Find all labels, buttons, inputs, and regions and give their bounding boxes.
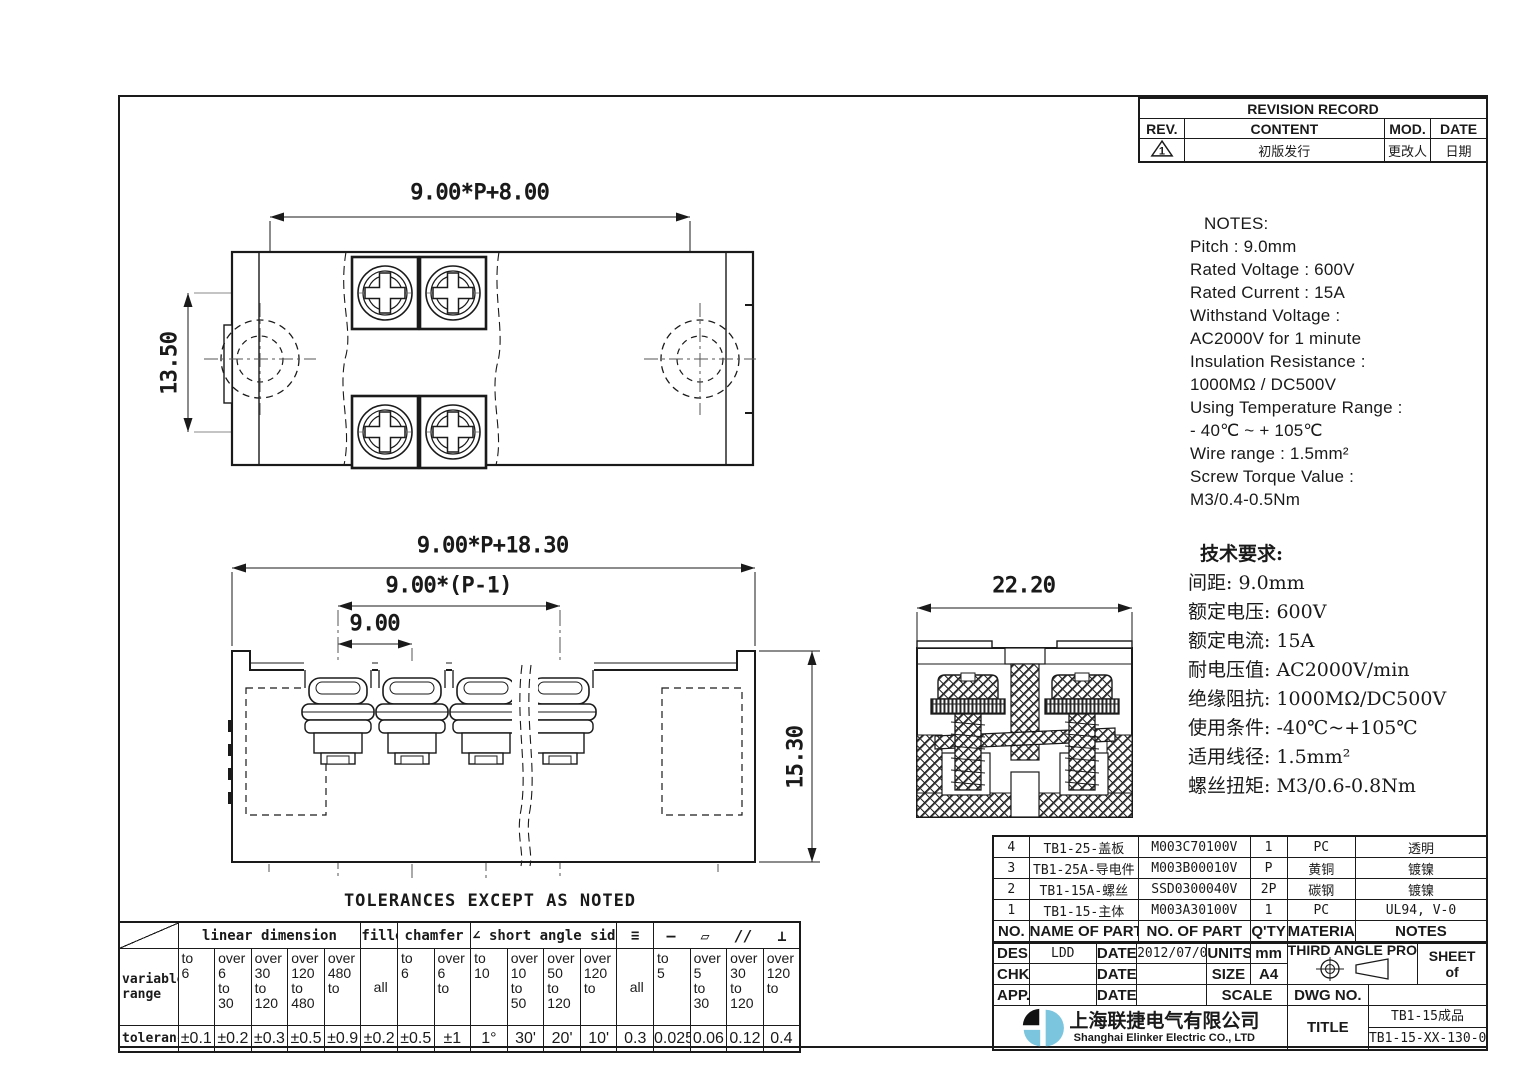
notes-line: - 40℃ ~ + 105℃ xyxy=(1190,419,1403,442)
notes-line: M3/0.4-0.5Nm xyxy=(1190,488,1403,511)
des-label: DES. xyxy=(993,942,1029,964)
range-cell: over 30 to 120 xyxy=(727,949,764,1026)
notes-line: 1000MΩ / DC500V xyxy=(1190,373,1403,396)
revision-col-rev: REV. xyxy=(1139,119,1184,139)
app-date-value xyxy=(1137,985,1207,1006)
title-label: TITLE xyxy=(1287,1006,1368,1051)
tolerance-value: ±1 xyxy=(434,1026,471,1053)
bom-header-row: NO.NAME OF PART NO. OF PARTQ'TY MATERIAL… xyxy=(993,921,1487,944)
revision-col-mod: MOD. xyxy=(1384,119,1430,139)
parallelism-icon: // xyxy=(734,927,752,945)
tech-line: 间距: 9.0mm xyxy=(1188,569,1446,598)
notes-line: Withstand Voltage : xyxy=(1190,304,1403,327)
revision-date: 日期 xyxy=(1431,139,1487,163)
notes-line: Wire range : 1.5mm² xyxy=(1190,442,1403,465)
range-cell: over 5 to 30 xyxy=(690,949,727,1026)
tech-line: 螺丝扭矩: M3/0.6-0.8Nm xyxy=(1188,772,1446,801)
dimension-label: 22.20 xyxy=(992,573,1055,597)
tolerance-table: linear dimension fillet chamfer ∠ short … xyxy=(118,921,801,1053)
revision-content: 初版发行 xyxy=(1184,139,1384,163)
dimension-label: 15.30 xyxy=(783,725,807,788)
chk-label: CHK. xyxy=(993,964,1029,985)
approver-value xyxy=(1029,985,1096,1006)
symmetry-icon: ≡ xyxy=(617,922,654,949)
notes-line: AC2000V for 1 minute xyxy=(1190,327,1403,350)
range-cell: over 30 to 120 xyxy=(251,949,288,1026)
size-value: A4 xyxy=(1250,964,1287,985)
projection-cell: THIRD ANGLE PROJECTION xyxy=(1287,942,1418,985)
company-logo xyxy=(1021,1007,1063,1049)
third-angle-projection-icon xyxy=(1302,956,1402,982)
range-cell: all xyxy=(361,949,398,1026)
notes-line: Using Temperature Range : xyxy=(1190,396,1403,419)
checker-value xyxy=(1029,964,1096,985)
tech-line: 适用线径: 1.5mm² xyxy=(1188,743,1446,772)
bom-row: 2TB1-15A-螺丝 SSD0300040V2P 碳钢镀镍 xyxy=(993,879,1487,900)
range-cell: all xyxy=(617,949,654,1026)
dimension-label: 9.00*P+18.30 xyxy=(417,533,569,557)
company-name-en: Shanghai Elinker Electric CO., LTD xyxy=(1069,1032,1259,1044)
range-cell: to 6 xyxy=(397,949,434,1026)
tolerance-value: ±0.2 xyxy=(215,1026,252,1053)
tolerance-value: ±0.5 xyxy=(288,1026,325,1053)
tolerance-value: ±0.5 xyxy=(397,1026,434,1053)
date-label: DATE xyxy=(1096,985,1136,1006)
tech-line: 绝缘阻抗: 1000MΩ/DC500V xyxy=(1188,685,1446,714)
drawing-number: TB1-15-XX-130-00A xyxy=(1369,1028,1486,1049)
tolerance-value: 0.4 xyxy=(763,1026,800,1053)
app-label: APP. xyxy=(993,985,1029,1006)
range-cell: over 120 to xyxy=(763,949,800,1026)
tolerance-group-chamfer: chamfer xyxy=(397,922,470,949)
side-section-drawing: 22.20 xyxy=(880,560,1180,860)
revision-table: REVISION RECORD REV. CONTENT MOD. DATE 1… xyxy=(1138,97,1488,163)
tolerance-corner-cell xyxy=(119,922,178,949)
screw-head-top-view xyxy=(352,396,418,468)
tech-notes-block: 技术要求: 间距: 9.0mm 额定电压: 600V 额定电流: 15A 耐电压… xyxy=(1188,540,1446,801)
notes-line: Screw Torque Value : xyxy=(1190,465,1403,488)
bom-row: 3TB1-25A-导电件 M003B00010VP 黄铜镀镍 xyxy=(993,858,1487,879)
range-cell: over 6 to xyxy=(434,949,471,1026)
svg-text:1: 1 xyxy=(1159,146,1165,158)
tolerance-range-label: variable range xyxy=(119,949,178,1026)
tolerance-value: 20' xyxy=(544,1026,581,1053)
notes-line: Pitch : 9.0mm xyxy=(1190,235,1403,258)
top-view-drawing: 9.00*P+8.00 13.50 xyxy=(150,155,830,495)
notes-line: Rated Current : 15A xyxy=(1190,281,1403,304)
tolerance-row-label: tolerance xyxy=(119,1026,178,1053)
tolerance-value: 1° xyxy=(471,1026,508,1053)
tolerance-group-angle: ∠ short angle sid xyxy=(471,922,617,949)
revision-mark-cell: 1 xyxy=(1139,139,1184,163)
range-cell: to 6 xyxy=(178,949,215,1026)
screw-head-top-view xyxy=(420,257,486,329)
range-cell: over 480 to xyxy=(324,949,361,1026)
sheet-cell: SHEET of xyxy=(1418,942,1487,985)
engineering-drawing-page: REVISION RECORD REV. CONTENT MOD. DATE 1… xyxy=(0,0,1525,1079)
perpendicularity-icon: ⊥ xyxy=(777,927,786,945)
tolerance-group-geometry: — ▱ // ⊥ xyxy=(654,922,800,949)
designer-value: LDD xyxy=(1029,942,1096,964)
range-cell: to 10 xyxy=(471,949,508,1026)
range-cell: over 120 to xyxy=(580,949,617,1026)
company-cell: 上海联捷电气有限公司 Shanghai Elinker Electric CO.… xyxy=(993,1006,1287,1051)
angle-icon: ∠ xyxy=(472,928,480,944)
dimension-label: 13.50 xyxy=(157,331,181,394)
revision-triangle-icon: 1 xyxy=(1150,139,1174,158)
tolerance-value: ±0.3 xyxy=(251,1026,288,1053)
range-cell: to 5 xyxy=(654,949,691,1026)
bom-row: 4TB1-25-盖板 M003C70100V1 PC透明 xyxy=(993,836,1487,858)
units-label: UNITS xyxy=(1207,942,1250,964)
flatness-icon: ▱ xyxy=(700,927,709,945)
tolerance-value: ±0.9 xyxy=(324,1026,361,1053)
tech-title: 技术要求: xyxy=(1188,540,1446,569)
revision-col-date: DATE xyxy=(1431,119,1487,139)
dimension-label: 9.00*P+8.00 xyxy=(410,180,549,204)
tolerance-group-linear: linear dimension xyxy=(178,922,361,949)
tolerance-value: 0.025 xyxy=(654,1026,691,1053)
dwg-no-label: DWG NO. xyxy=(1287,985,1368,1006)
title-values: TB1-15成品 TB1-15-XX-130-00A xyxy=(1368,1006,1487,1051)
size-label: SIZE xyxy=(1207,964,1250,985)
tech-line: 额定电压: 600V xyxy=(1188,598,1446,627)
screw-head-top-view xyxy=(420,396,486,468)
tolerance-value: 0.12 xyxy=(727,1026,764,1053)
notes-line: Insulation Resistance : xyxy=(1190,350,1403,373)
tolerance-value: ±0.2 xyxy=(361,1026,398,1053)
tolerance-value: 0.06 xyxy=(690,1026,727,1053)
date-value: 2012/07/03 xyxy=(1137,942,1207,964)
tolerance-value: 0.3 xyxy=(617,1026,654,1053)
range-cell: over 120 to 480 xyxy=(288,949,325,1026)
chk-date-value xyxy=(1137,964,1207,985)
revision-col-content: CONTENT xyxy=(1184,119,1384,139)
dimension-label: 9.00*(P-1) xyxy=(386,573,512,597)
scale-label: SCALE xyxy=(1207,985,1287,1006)
dwg-no-value xyxy=(1368,985,1487,1006)
date-label: DATE xyxy=(1096,964,1136,985)
tolerance-title: TOLERANCES EXCEPT AS NOTED xyxy=(280,891,700,911)
tech-line: 额定电流: 15A xyxy=(1188,627,1446,656)
tech-line: 使用条件: -40℃~+105℃ xyxy=(1188,714,1446,743)
screw-head-top-view xyxy=(352,257,418,329)
tech-line: 耐电压值: AC2000V/min xyxy=(1188,656,1446,685)
drawing-title: TB1-15成品 xyxy=(1369,1006,1486,1028)
range-cell: over 50 to 120 xyxy=(544,949,581,1026)
notes-title: NOTES: xyxy=(1190,212,1403,235)
bom-row: 1TB1-15-主体 M003A30100V1 PCUL94, V-0 xyxy=(993,900,1487,921)
tolerance-group-fillet: fillet xyxy=(361,922,398,949)
range-cell: over 10 to 50 xyxy=(507,949,544,1026)
range-cell: over 6 to 30 xyxy=(215,949,252,1026)
straightness-icon: — xyxy=(666,927,675,945)
notes-block: NOTES: Pitch : 9.0mm Rated Voltage : 600… xyxy=(1190,212,1403,511)
title-block: DES. LDD DATE 2012/07/03 UNITS mm THIRD … xyxy=(992,941,1488,1051)
tolerance-value: 30' xyxy=(507,1026,544,1053)
tolerance-value: 10' xyxy=(580,1026,617,1053)
units-value: mm xyxy=(1250,942,1287,964)
revision-title: REVISION RECORD xyxy=(1139,98,1487,119)
bom-table: 4TB1-25-盖板 M003C70100V1 PC透明 3TB1-25A-导电… xyxy=(992,835,1488,944)
date-label: DATE xyxy=(1096,942,1136,964)
revision-mod: 更改人 xyxy=(1384,139,1430,163)
dimension-label: 9.00 xyxy=(350,611,401,635)
notes-line: Rated Voltage : 600V xyxy=(1190,258,1403,281)
company-name-cn: 上海联捷电气有限公司 xyxy=(1069,1012,1259,1032)
front-view-drawing: 9.00*P+18.30 9.00*(P-1) 9.00 xyxy=(150,520,850,890)
tolerance-value: ±0.1 xyxy=(178,1026,215,1053)
